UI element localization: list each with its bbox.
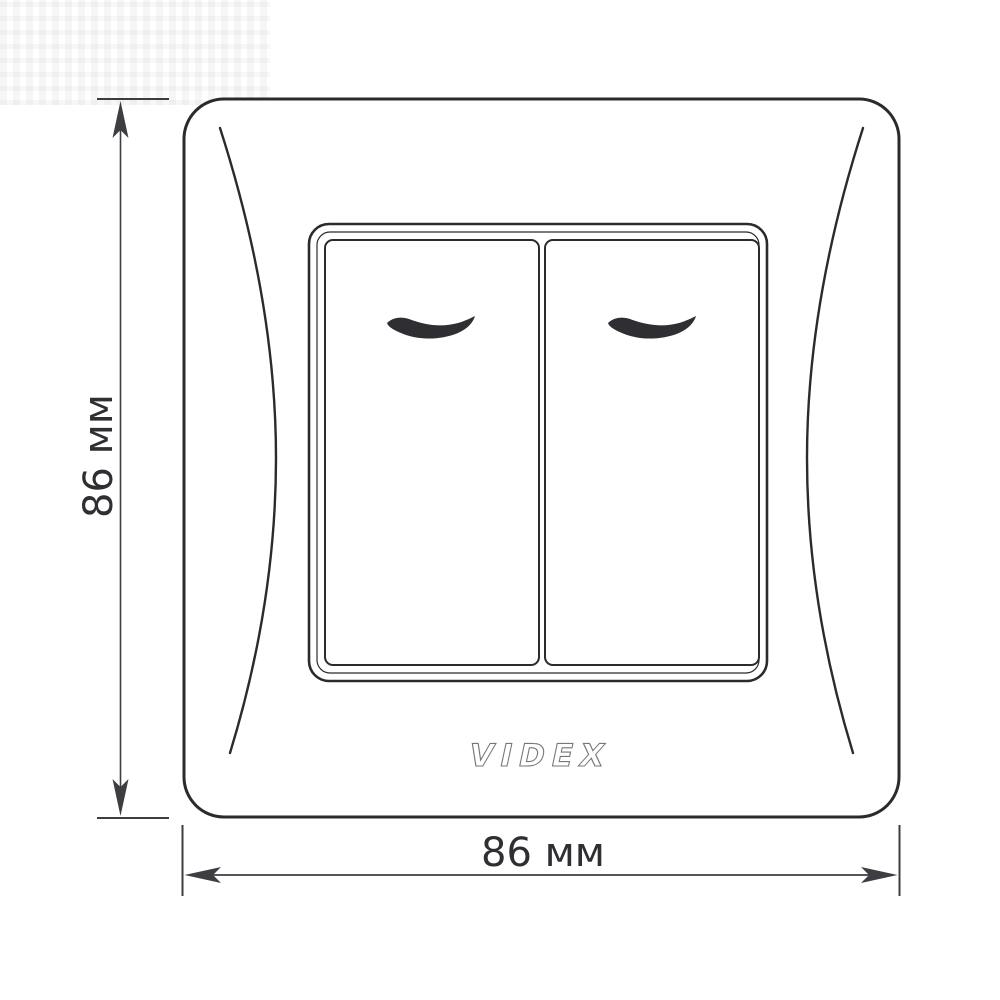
product-dimension-drawing: VIDEX 86 мм 86 мм	[0, 0, 1000, 1000]
height-dimension-label: 86 мм	[76, 394, 122, 518]
vertical-dimension-group: 86 мм	[76, 99, 169, 818]
switch-button-left[interactable]	[325, 240, 539, 665]
drawing-svg: VIDEX 86 мм 86 мм	[0, 0, 1000, 1000]
horizontal-dimension-group: 86 мм	[183, 825, 900, 896]
width-dimension-label: 86 мм	[481, 830, 605, 876]
brand-logo-videx: VIDEX	[466, 738, 615, 774]
switch-button-right[interactable]	[545, 240, 759, 665]
